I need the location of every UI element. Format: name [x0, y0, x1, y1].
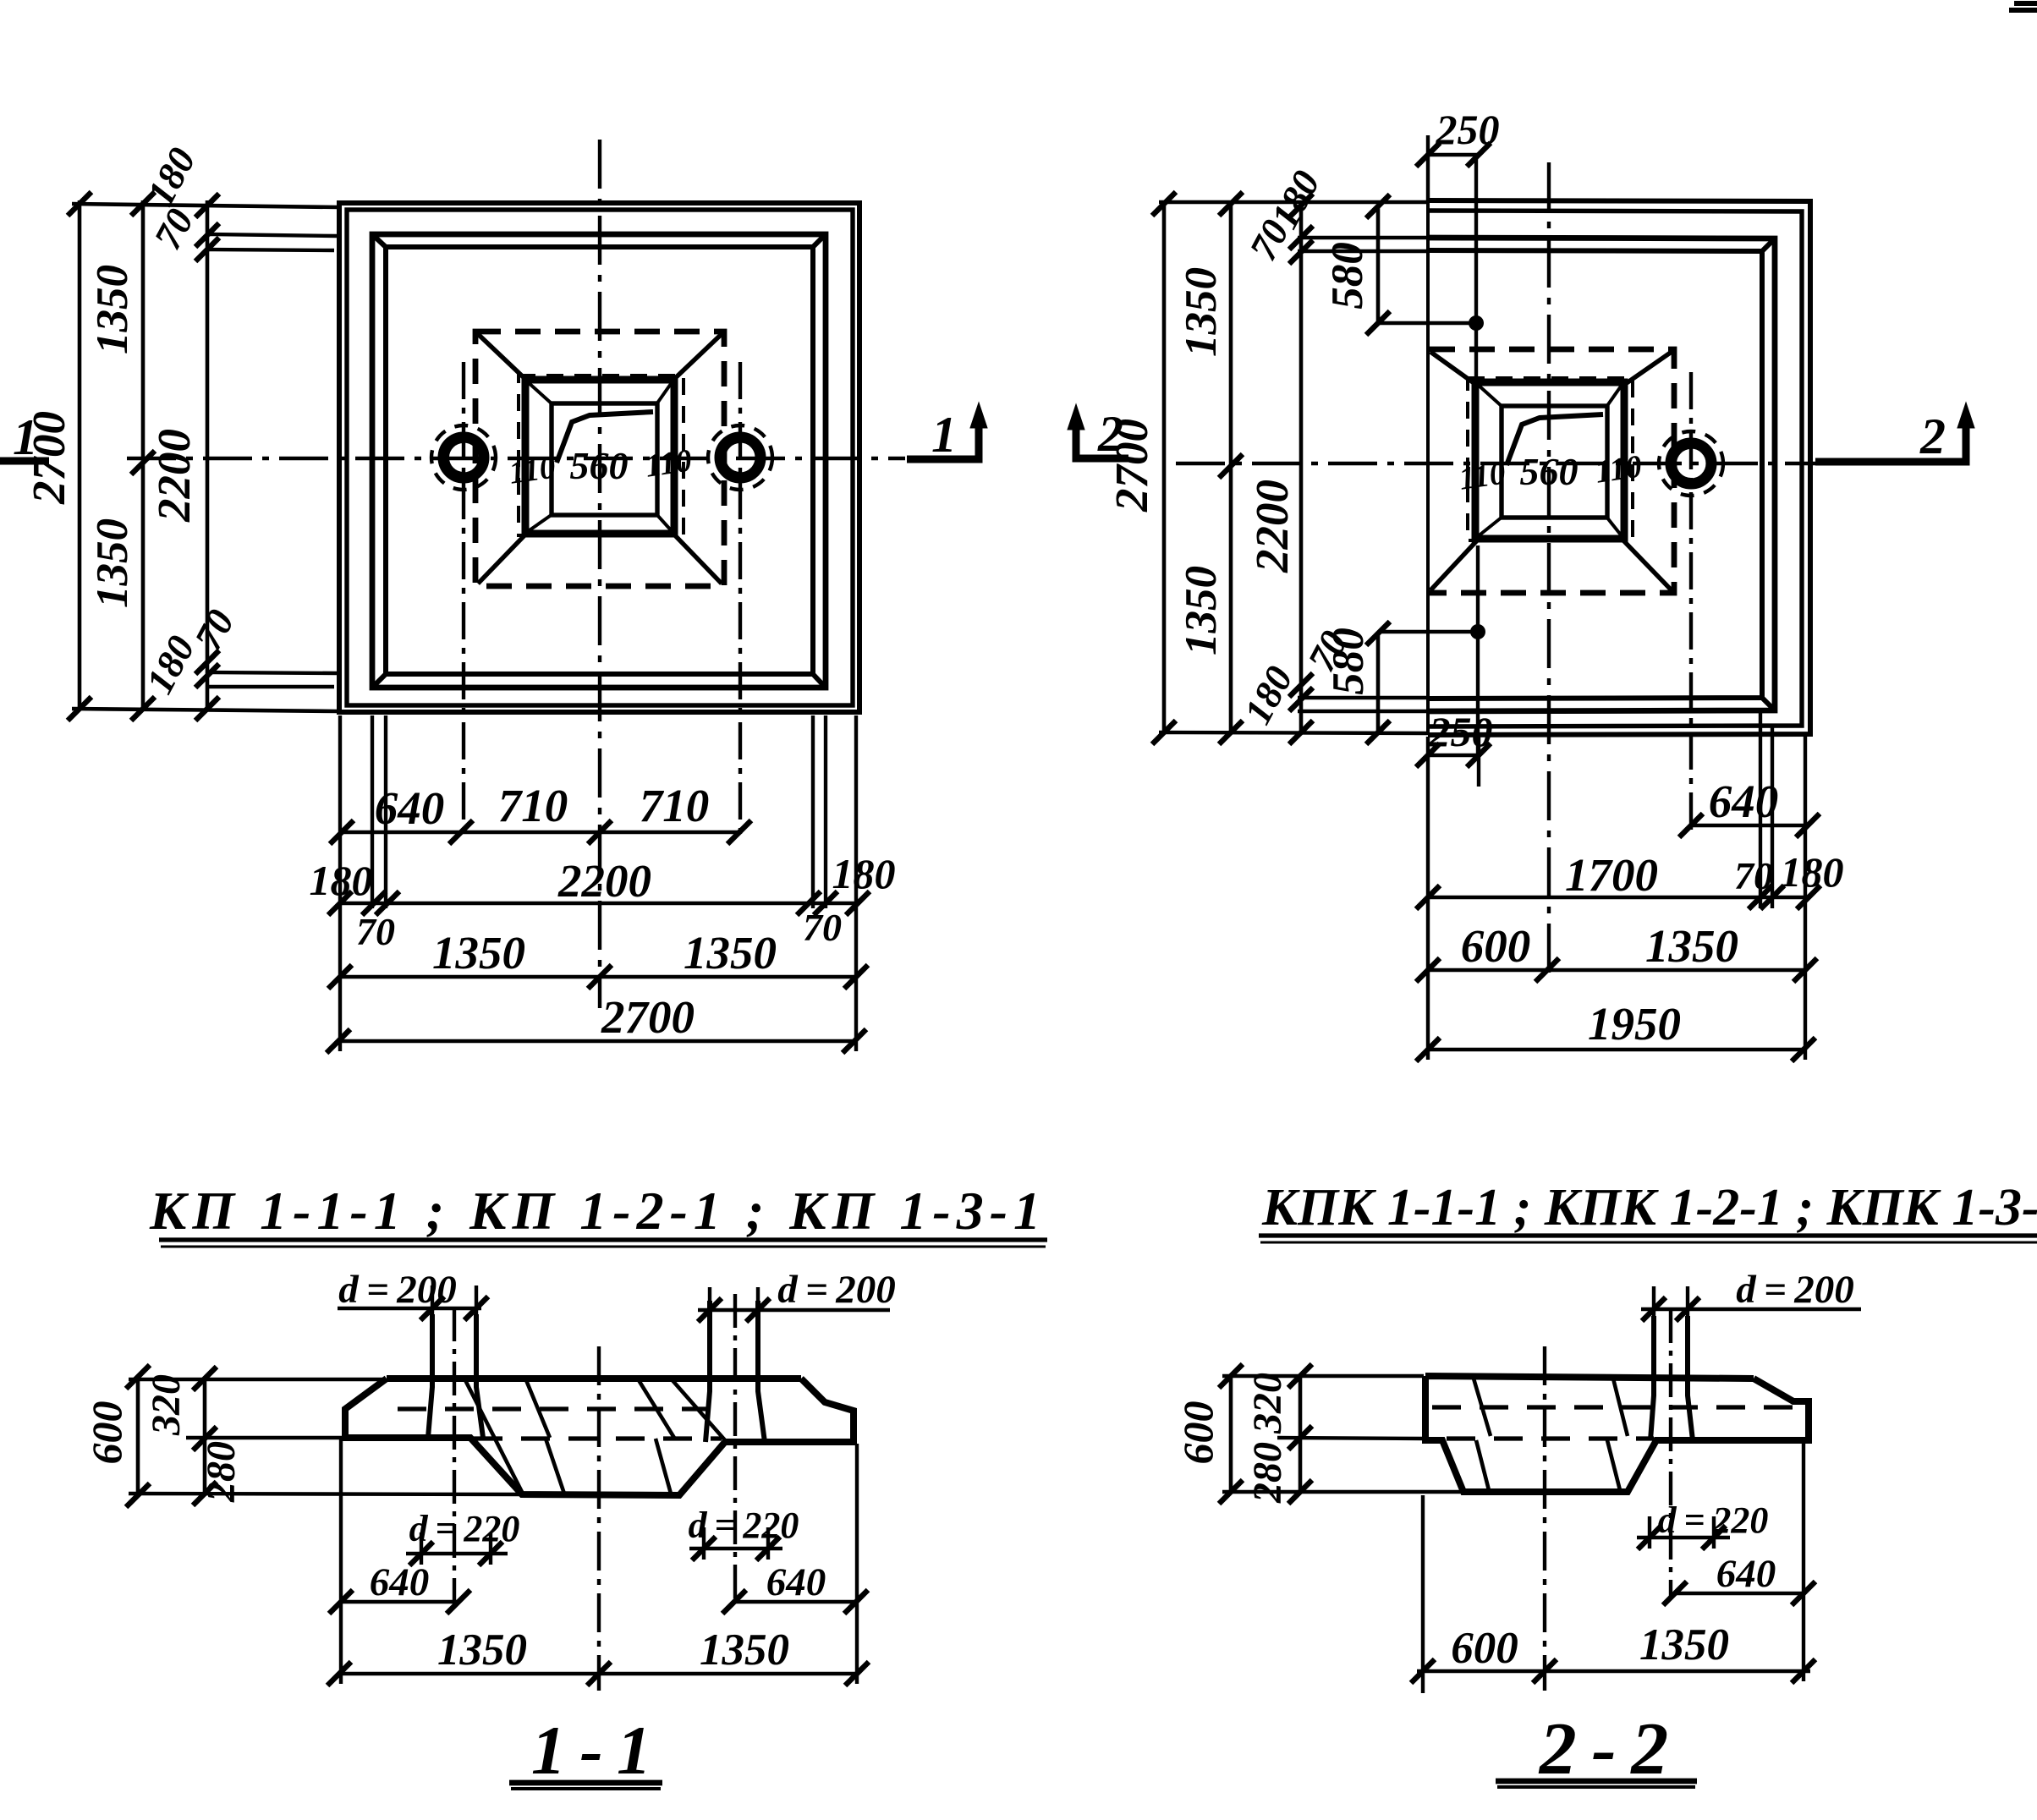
svg-text:560: 560: [1520, 450, 1579, 493]
svg-text:710: 710: [640, 780, 710, 831]
svg-text:2 - 2: 2 - 2: [1538, 1708, 1669, 1790]
svg-text:1350: 1350: [1639, 1620, 1729, 1669]
svg-text:1700: 1700: [1565, 849, 1658, 901]
svg-text:КПК 1-1-1 ; КПК 1-2-1 ; КПК 1-: КПК 1-1-1 ; КПК 1-2-1 ; КПК 1-3-1: [1261, 1179, 2037, 1236]
svg-text:2200: 2200: [557, 855, 651, 907]
svg-text:110: 110: [1593, 449, 1644, 491]
svg-text:1950: 1950: [1588, 998, 1681, 1050]
svg-text:2700: 2700: [601, 991, 695, 1043]
svg-text:280: 280: [1245, 1442, 1290, 1504]
svg-text:710: 710: [498, 780, 568, 831]
svg-text:d = 200: d = 200: [1736, 1268, 1854, 1312]
svg-text:110: 110: [1457, 456, 1507, 497]
svg-text:110: 110: [507, 450, 557, 491]
svg-text:2700: 2700: [23, 411, 74, 505]
svg-text:600: 600: [83, 1401, 130, 1465]
svg-text:70: 70: [803, 906, 842, 949]
svg-text:1350: 1350: [1177, 566, 1226, 655]
svg-text:640: 640: [1716, 1552, 1776, 1596]
svg-text:1350: 1350: [1645, 920, 1738, 972]
svg-text:КП 1-1-1 ; КП 1-2-1 ; КП 1-3-: КП 1-1-1 ; КП 1-2-1 ; КП 1-3-1: [149, 1181, 1046, 1241]
svg-text:640: 640: [1709, 776, 1779, 827]
svg-text:1350: 1350: [88, 265, 137, 354]
svg-text:600: 600: [1174, 1401, 1222, 1465]
svg-text:600: 600: [1461, 920, 1531, 972]
svg-text:1350: 1350: [437, 1625, 527, 1675]
svg-text:1 - 1: 1 - 1: [531, 1712, 651, 1789]
svg-text:250: 250: [1436, 106, 1500, 153]
svg-text:180: 180: [1781, 848, 1844, 896]
svg-text:1350: 1350: [700, 1625, 789, 1675]
svg-text:180: 180: [832, 850, 896, 897]
svg-text:640: 640: [766, 1560, 826, 1604]
svg-text:600: 600: [1451, 1624, 1518, 1673]
svg-text:2700: 2700: [1106, 419, 1157, 513]
svg-text:320: 320: [1245, 1373, 1290, 1434]
svg-text:1: 1: [931, 407, 957, 463]
svg-text:1350: 1350: [1177, 267, 1226, 357]
svg-text:110: 110: [643, 443, 694, 485]
svg-text:70: 70: [1734, 854, 1773, 897]
svg-text:2200: 2200: [1246, 480, 1298, 573]
svg-text:d = 200: d = 200: [777, 1268, 896, 1312]
svg-text:70: 70: [356, 910, 395, 953]
svg-text:640: 640: [370, 1560, 430, 1604]
svg-text:1350: 1350: [88, 518, 137, 608]
svg-text:560: 560: [570, 444, 629, 487]
svg-text:2200: 2200: [148, 429, 200, 523]
svg-text:250: 250: [1429, 708, 1493, 755]
svg-text:320: 320: [144, 1374, 189, 1436]
svg-text:1350: 1350: [432, 927, 525, 979]
svg-text:2: 2: [1919, 408, 1946, 464]
svg-text:1350: 1350: [684, 927, 777, 979]
